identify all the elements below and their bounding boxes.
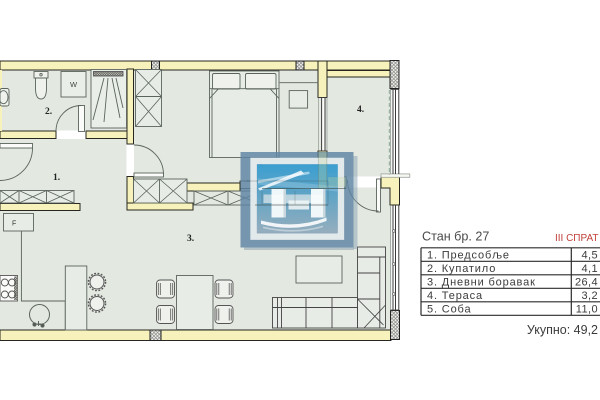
svg-text:4,5: 4,5 (582, 250, 599, 262)
svg-text:3.: 3. (187, 234, 194, 244)
svg-text:2.: 2. (45, 107, 52, 117)
svg-text:3. Дневни боравак: 3. Дневни боравак (427, 277, 536, 289)
svg-text:5. Соба: 5. Соба (427, 304, 471, 316)
svg-text:Стан бр. 27: Стан бр. 27 (422, 230, 489, 244)
svg-text:1.: 1. (53, 173, 60, 183)
svg-text:Укупно: 49,2: Укупно: 49,2 (527, 323, 598, 337)
svg-text:11,0: 11,0 (576, 304, 598, 316)
svg-text:2. Купатило: 2. Купатило (427, 263, 496, 275)
svg-text:4.: 4. (357, 105, 364, 115)
svg-text:III СПРАТ: III СПРАТ (555, 233, 599, 244)
svg-text:1. Предсобље: 1. Предсобље (427, 250, 510, 262)
svg-text:W: W (70, 80, 78, 89)
svg-text:26,4: 26,4 (575, 277, 598, 289)
svg-text:F: F (12, 221, 16, 228)
svg-text:4,1: 4,1 (582, 263, 599, 275)
svg-text:4. Тераса: 4. Тераса (427, 290, 483, 302)
svg-text:3,2: 3,2 (582, 290, 599, 302)
